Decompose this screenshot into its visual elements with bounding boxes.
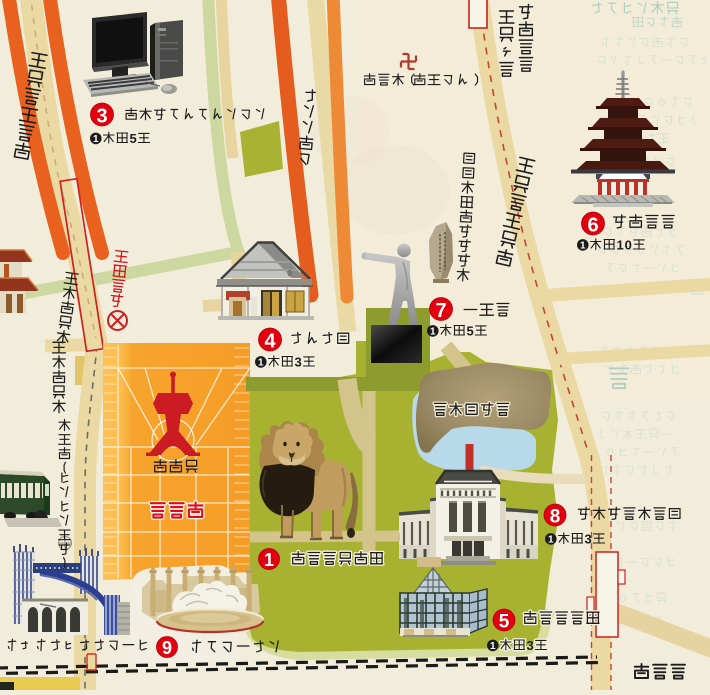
svg-text:9: 9 xyxy=(162,638,172,658)
svg-text:1: 1 xyxy=(617,238,624,253)
svg-text:3: 3 xyxy=(295,355,302,370)
svg-text:1: 1 xyxy=(430,326,436,337)
svg-text:1: 1 xyxy=(258,357,264,368)
svg-text:5: 5 xyxy=(130,131,137,146)
svg-text:3: 3 xyxy=(585,532,592,547)
svg-text:0: 0 xyxy=(625,238,632,253)
svg-text:4: 4 xyxy=(264,330,276,352)
svg-text:5: 5 xyxy=(499,612,510,633)
svg-text:3: 3 xyxy=(527,638,534,653)
svg-text:1: 1 xyxy=(548,534,554,545)
svg-text:1: 1 xyxy=(93,134,99,145)
svg-text:3: 3 xyxy=(96,105,107,127)
svg-text:8: 8 xyxy=(550,507,561,528)
svg-text:1: 1 xyxy=(580,240,586,251)
svg-text:6: 6 xyxy=(587,214,598,236)
svg-text:1: 1 xyxy=(264,550,274,570)
svg-text:5: 5 xyxy=(467,324,474,339)
svg-text:1: 1 xyxy=(490,641,496,652)
svg-text:7: 7 xyxy=(435,300,446,322)
